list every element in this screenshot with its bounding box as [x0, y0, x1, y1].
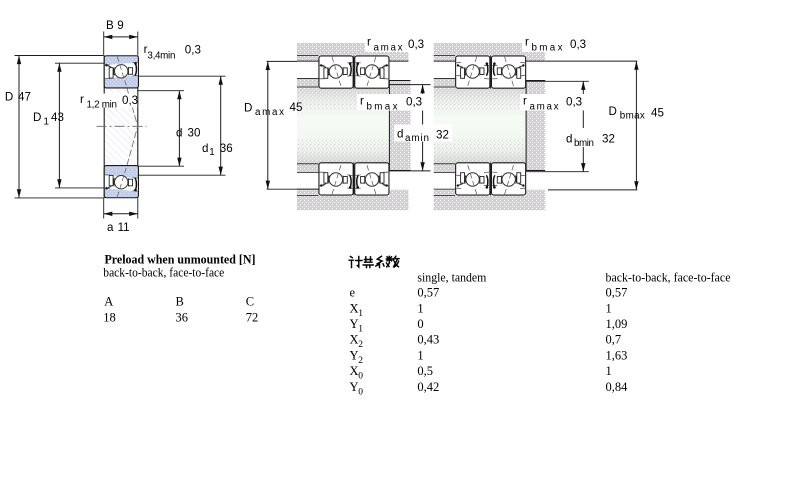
- svg-text:47: 47: [18, 90, 31, 103]
- svg-text:D: D: [5, 90, 13, 103]
- svg-text:1,09: 1,09: [606, 317, 628, 331]
- svg-text:1,63: 1,63: [606, 348, 628, 362]
- svg-text:amax: amax: [374, 43, 403, 54]
- svg-text:amax: amax: [530, 102, 559, 113]
- svg-text:Y: Y: [350, 348, 359, 362]
- svg-text:0,7: 0,7: [606, 333, 622, 347]
- svg-text:Y: Y: [350, 317, 359, 331]
- svg-text:C: C: [246, 295, 254, 309]
- svg-text:43: 43: [51, 111, 64, 124]
- svg-text:a: a: [107, 221, 114, 234]
- svg-text:X: X: [350, 364, 359, 378]
- svg-text:45: 45: [290, 101, 303, 114]
- svg-text:1: 1: [358, 325, 363, 335]
- svg-text:0,3: 0,3: [406, 96, 422, 109]
- svg-text:X: X: [350, 301, 359, 315]
- svg-text:0,5: 0,5: [417, 364, 433, 378]
- svg-text:72: 72: [246, 311, 258, 325]
- svg-text:r: r: [80, 93, 84, 106]
- svg-text:r: r: [360, 95, 364, 108]
- svg-text:X: X: [350, 333, 359, 347]
- svg-text:e: e: [350, 286, 356, 300]
- svg-text:bmin: bmin: [574, 138, 594, 149]
- svg-text:1: 1: [358, 309, 363, 319]
- svg-text:r: r: [367, 36, 371, 49]
- svg-text:d: d: [397, 128, 403, 141]
- svg-text:1: 1: [417, 348, 423, 362]
- svg-text:0,42: 0,42: [417, 380, 439, 394]
- svg-text:single, tandem: single, tandem: [417, 271, 486, 285]
- svg-text:r: r: [523, 95, 527, 108]
- svg-text:0: 0: [417, 317, 423, 331]
- svg-text:bmax: bmax: [367, 102, 398, 113]
- svg-text:B: B: [106, 19, 114, 32]
- svg-text:D: D: [609, 105, 617, 118]
- svg-text:D: D: [244, 102, 252, 115]
- svg-text:0,43: 0,43: [417, 333, 439, 347]
- svg-text:1: 1: [44, 117, 49, 128]
- svg-text:2: 2: [358, 340, 363, 350]
- svg-text:Y: Y: [350, 380, 359, 394]
- svg-text:45: 45: [651, 107, 664, 120]
- svg-text:0: 0: [358, 372, 363, 382]
- svg-text:B: B: [176, 295, 184, 309]
- svg-text:32: 32: [602, 133, 615, 146]
- svg-text:18: 18: [103, 311, 116, 325]
- svg-text:d: d: [566, 133, 572, 146]
- svg-text:0,3: 0,3: [122, 94, 138, 107]
- svg-text:36: 36: [176, 311, 189, 325]
- svg-text:36: 36: [220, 142, 233, 155]
- svg-text:bmax: bmax: [532, 43, 563, 54]
- svg-text:0: 0: [358, 387, 363, 397]
- svg-text:1: 1: [209, 147, 214, 158]
- svg-text:back-to-back, face-to-face: back-to-back, face-to-face: [103, 266, 224, 280]
- svg-text:0,57: 0,57: [417, 286, 439, 300]
- svg-text:1: 1: [417, 301, 423, 315]
- svg-text:9: 9: [117, 19, 123, 32]
- svg-text:back-to-back, face-to-face: back-to-back, face-to-face: [606, 271, 731, 285]
- svg-text:bmax: bmax: [620, 111, 645, 122]
- svg-text:amin: amin: [405, 133, 429, 144]
- svg-text:1,2 min: 1,2 min: [87, 100, 118, 111]
- svg-text:Preload when unmounted [N]: Preload when unmounted [N]: [105, 253, 256, 267]
- svg-text:D: D: [33, 111, 41, 124]
- svg-text:0,84: 0,84: [606, 380, 629, 394]
- svg-text:amax: amax: [255, 107, 284, 118]
- svg-text:d: d: [202, 142, 208, 155]
- svg-text:0,3: 0,3: [408, 38, 424, 51]
- svg-text:11: 11: [118, 221, 130, 234]
- svg-text:r: r: [525, 36, 529, 49]
- svg-text:2: 2: [358, 356, 363, 366]
- svg-text:30: 30: [188, 126, 201, 139]
- svg-text:1: 1: [606, 364, 612, 378]
- svg-text:0,57: 0,57: [606, 286, 628, 300]
- svg-text:d: d: [176, 126, 182, 139]
- svg-text:3,4min: 3,4min: [147, 51, 175, 62]
- svg-text:0,3: 0,3: [570, 38, 586, 51]
- svg-text:1: 1: [606, 301, 612, 315]
- svg-text:0,3: 0,3: [566, 96, 582, 109]
- svg-text:32: 32: [436, 129, 449, 142]
- svg-text:A: A: [104, 295, 113, 309]
- svg-text:0,3: 0,3: [185, 44, 201, 57]
